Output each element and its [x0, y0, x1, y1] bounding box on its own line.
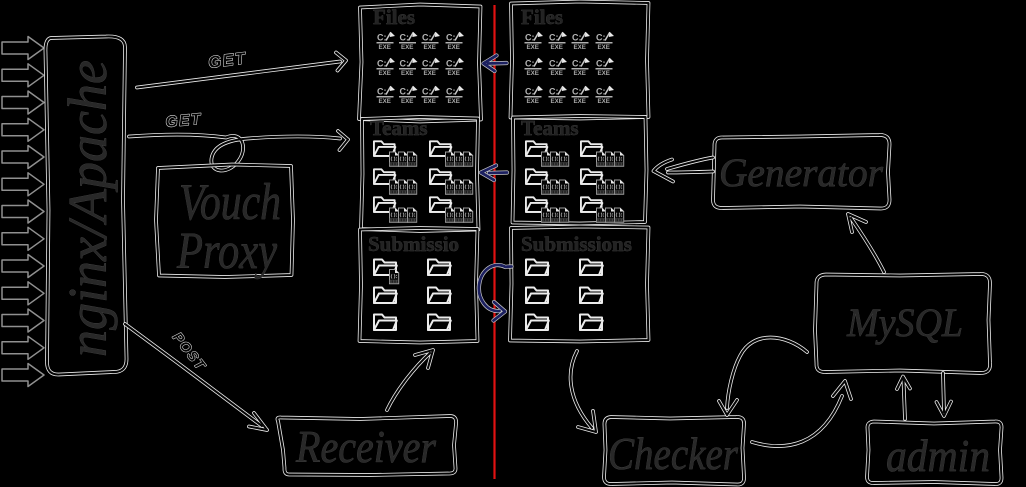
svg-text:Submissio: Submissio	[368, 232, 459, 256]
svg-text:MySQL: MySQL	[846, 300, 963, 345]
svg-text:Teams: Teams	[521, 116, 579, 140]
svg-text:Files: Files	[521, 5, 563, 29]
svg-text:Teams: Teams	[370, 116, 428, 140]
svg-text:Checker: Checker	[608, 428, 739, 479]
svg-text:Generator: Generator	[719, 150, 883, 195]
svg-text:Proxy: Proxy	[176, 223, 278, 280]
svg-text:nginx/Apache: nginx/Apache	[57, 60, 118, 357]
svg-text:GET: GET	[165, 111, 203, 131]
svg-text:Receiver: Receiver	[295, 422, 436, 472]
svg-text:Submissions: Submissions	[521, 232, 632, 256]
svg-text:admin: admin	[886, 430, 990, 481]
svg-text:Files: Files	[373, 5, 415, 29]
